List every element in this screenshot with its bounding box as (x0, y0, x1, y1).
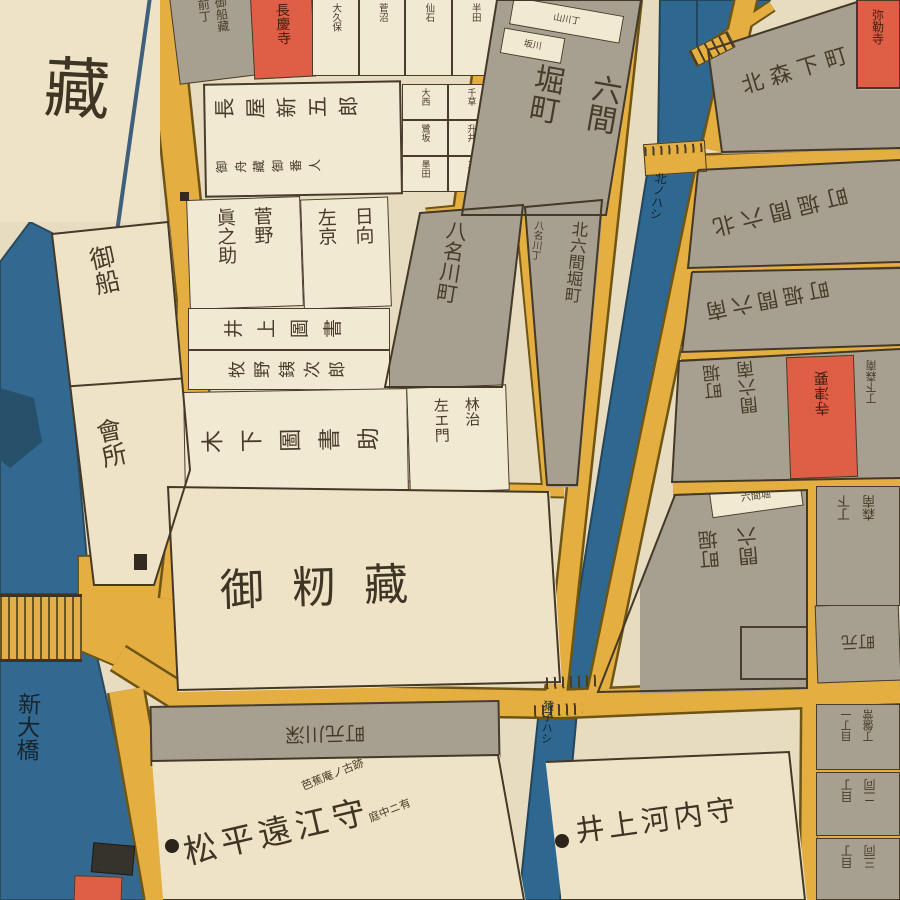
notice-board-marker (134, 554, 147, 570)
boat-shape (91, 842, 135, 876)
minami-morishita-right: 南森 (861, 495, 880, 605)
motomachi-strip-label: 深川元町 (285, 720, 365, 750)
minami-morishita-cell: 南森 下丁 (816, 486, 900, 606)
name-cell: 仙石 (405, 0, 452, 76)
name-cell: 大西 (402, 84, 448, 120)
mirokuji-label: 弥勒寺 (870, 9, 887, 45)
yanagawa-label: 八名川町 (421, 218, 470, 380)
name-cell: 大久保 (312, 0, 359, 76)
gate-dot (555, 834, 569, 848)
hayashi-label-right: 林治 (462, 396, 486, 491)
chome3-label-right: 同三 (861, 845, 878, 899)
hyuga-cell: 日向 左京 (300, 196, 392, 309)
wedge-divider (52, 377, 182, 388)
strip-small-label: 八名川丁 (528, 220, 544, 261)
hyuga-label-left: 左京 (312, 207, 342, 308)
chome2-label-right: 同二 (861, 779, 878, 835)
name-cell: 菅沼 (359, 0, 406, 76)
name-cell: 鷺坂 (402, 120, 448, 156)
minami-rokken-block: 南六間堀町 (680, 262, 900, 356)
name-cell: 墨田 (402, 156, 448, 192)
chome2-cell: 同二 丁目 (816, 772, 900, 836)
funagura-mae-block: 御船藏 前丁 (169, 0, 263, 85)
empty-lot (740, 626, 814, 680)
rokkenbori-label-right: 六間 (574, 70, 628, 137)
rokkenbori-label-left: 堀町 (517, 60, 571, 127)
inoue-kawachi-block: 井上河内守 (543, 752, 807, 900)
temple-top-label: 長慶寺 (271, 3, 293, 46)
funaban-label: 御舟藏御番人 (214, 156, 325, 177)
rokkenbori-south-block: 六間堀 六間 堀町 (640, 486, 812, 698)
hayashi-cell: 林治 左エ門 (406, 384, 510, 493)
name-label: 半田 (468, 3, 482, 22)
matsudaira-block: 芭蕉庵ノ古跡 庭中ニ有 松平遠江守 (152, 755, 526, 900)
rokkenbori-south-label: 六間 堀町 (684, 524, 773, 571)
hayashi-label-left: 左エ門 (431, 397, 455, 492)
rokkenbori-south-right: 六間 (732, 525, 764, 567)
gate-dot (165, 839, 179, 853)
motomachi-cell: 元町 (815, 603, 900, 684)
tokiwa-label-left: 一丁目 (839, 709, 855, 769)
name-cells-top: 大久保 菅沼 仙石 半田 (312, 0, 498, 76)
name-label: 大西 (419, 88, 432, 106)
edo-fukagawa-map: 藏 御船 會所 御船藏 前丁 長慶寺 大久保 菅沼 仙石 半田 大西 千草 鷺坂… (0, 0, 900, 900)
gate-marker (180, 192, 189, 201)
bridge-hatch (0, 597, 82, 659)
saruko-bridge-label: 猿子ハシ (538, 700, 554, 745)
shin-ohashi-bridge (0, 594, 82, 662)
kinoshita-label: 木下圖書助 (185, 421, 408, 459)
chome3-cell: 同三 丁目 (816, 838, 900, 900)
chome3-label-left: 丁目 (838, 845, 855, 899)
name-label: 菅沼 (375, 3, 389, 22)
kita-rokken-label: 北六間堀町 (703, 181, 850, 241)
tokiwa-label-right: 常盤丁 (861, 709, 877, 769)
rokkenbori-label: 六間 堀町 (513, 59, 632, 137)
sugano-label-left: 眞之助 (211, 207, 241, 308)
bridge-hatch (644, 143, 704, 156)
name-label: 千草 (465, 88, 478, 106)
motomachi-label: 元町 (841, 630, 876, 656)
chome2-label-left: 丁目 (838, 779, 855, 835)
minami-rokken2-left: 堀町 (699, 363, 731, 419)
basho-note-1: 芭蕉庵ノ古跡 (300, 757, 366, 793)
name-label: 墨田 (419, 160, 432, 178)
basho-note-2: 庭中ニ有 (367, 797, 413, 825)
strip-main-label: 北六間堀町 (543, 220, 588, 471)
minami-rokken-label: 南六間堀町 (699, 276, 831, 325)
name-label: 鷺坂 (419, 124, 432, 142)
matsudaira-label: 松平遠江守 (180, 792, 374, 872)
hyuga-label-right: 日向 (349, 206, 379, 307)
nagaya-label: 長屋新五郎 (213, 91, 368, 124)
boat-office-lower-label: 會所 (90, 416, 129, 471)
inoue-tosho-label: 井上圖書 (189, 315, 389, 342)
minami-rokken2-block: 南六間 堀町 要津寺 南森下丁 (670, 348, 900, 484)
minami-morishita-label: 南森下丁 (866, 360, 879, 404)
name-label: 仙石 (421, 3, 435, 22)
momigura-label: 御籾藏 (219, 559, 437, 617)
temple-top-block: 長慶寺 (250, 0, 316, 80)
yoshinji-label: 要津寺 (810, 371, 833, 417)
inoue-tosho-cell: 井上圖書 (188, 308, 390, 350)
inoue-kawachi-label: 井上河内守 (573, 793, 741, 849)
minami-rokken2-label: 南六間 堀町 (683, 357, 780, 420)
storehouse-label: 藏 (42, 50, 112, 129)
boat-office-upper-label: 御船 (83, 243, 122, 298)
makino-label: 牧野銕次郎 (189, 357, 389, 382)
kinoshita-cell: 木下圖書助 (183, 388, 409, 494)
nagaya-block: 長屋新五郎 御舟藏御番人 (203, 80, 403, 197)
minami-rokken2-right: 南六間 (733, 359, 765, 415)
rokkenbori-south-left: 堀町 (693, 529, 725, 571)
makino-cell: 牧野銕次郎 (188, 350, 390, 390)
kita-morishita-label: 北森下町 (739, 42, 857, 100)
momigura-block: 御籾藏 (165, 485, 562, 692)
minami-morishita-left: 下丁 (836, 495, 855, 605)
tokiwa-cell: 常盤丁 一丁目 (816, 704, 900, 770)
yoshinji-block: 要津寺 (786, 355, 858, 479)
mirokuji-block: 弥勒寺 (856, 0, 900, 88)
small-tag-2: 坂川 (500, 27, 566, 63)
dock-shape (74, 875, 123, 900)
sugano-label-right: 菅野 (248, 206, 278, 307)
name-label: 大久保 (328, 3, 342, 32)
sugano-cell: 菅野 眞之助 (186, 196, 304, 310)
